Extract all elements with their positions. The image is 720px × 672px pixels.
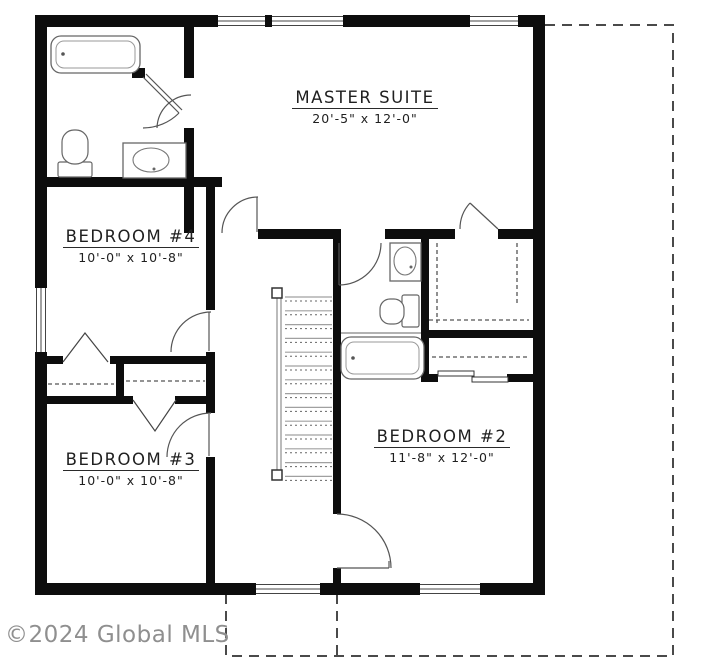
doors — [143, 74, 498, 568]
bath1-door — [143, 74, 182, 128]
room-name: MASTER SUITE — [292, 88, 437, 109]
bathtub — [341, 337, 424, 379]
bath1-vestibule-door — [157, 95, 191, 128]
bedroom2-door — [337, 514, 391, 568]
walkin-closet-door — [460, 203, 498, 229]
room-dimensions: 10'-0" x 10'-8" — [56, 248, 206, 265]
room-name: BEDROOM #4 — [63, 227, 200, 248]
closet-bifold-door — [63, 333, 108, 362]
closet-bifold-door — [133, 400, 176, 431]
bedroom4-door — [171, 312, 211, 352]
window — [420, 583, 480, 595]
room-dimensions: 10'-0" x 10'-8" — [56, 471, 206, 488]
window — [470, 15, 518, 27]
master-bath-door — [339, 243, 381, 285]
toilet — [58, 130, 92, 177]
window — [218, 15, 265, 27]
stair-treads — [285, 297, 332, 480]
newel-post — [272, 288, 282, 298]
staircase — [272, 288, 332, 480]
room-label-master-suite: MASTER SUITE 20'-5" x 12'-0" — [285, 88, 445, 126]
interior-walls — [35, 15, 533, 583]
room-name: BEDROOM #2 — [374, 427, 511, 448]
room-label-bedroom-2: BEDROOM #2 11'-8" x 12'-0" — [368, 427, 516, 465]
toilet — [380, 295, 419, 327]
closet-sliding-door — [438, 371, 508, 382]
room-label-bedroom-3: BEDROOM #3 10'-0" x 10'-8" — [56, 450, 206, 488]
room-dimensions: 11'-8" x 12'-0" — [368, 448, 516, 465]
room-name: BEDROOM #3 — [63, 450, 200, 471]
floor-plan-image: MASTER SUITE 20'-5" x 12'-0" BEDROOM #4 … — [0, 0, 720, 672]
newel-post — [272, 470, 282, 480]
vanity-sink — [123, 143, 186, 178]
window — [35, 288, 47, 352]
window — [256, 583, 320, 595]
watermark: ©2024 Global MLS — [5, 622, 230, 648]
vanity-sink — [390, 243, 421, 281]
master-suite-entry-door — [222, 197, 258, 233]
stair-railing — [277, 296, 281, 477]
bathtub — [51, 36, 140, 73]
window — [272, 15, 343, 27]
room-label-bedroom-4: BEDROOM #4 10'-0" x 10'-8" — [56, 227, 206, 265]
room-dimensions: 20'-5" x 12'-0" — [285, 109, 445, 126]
